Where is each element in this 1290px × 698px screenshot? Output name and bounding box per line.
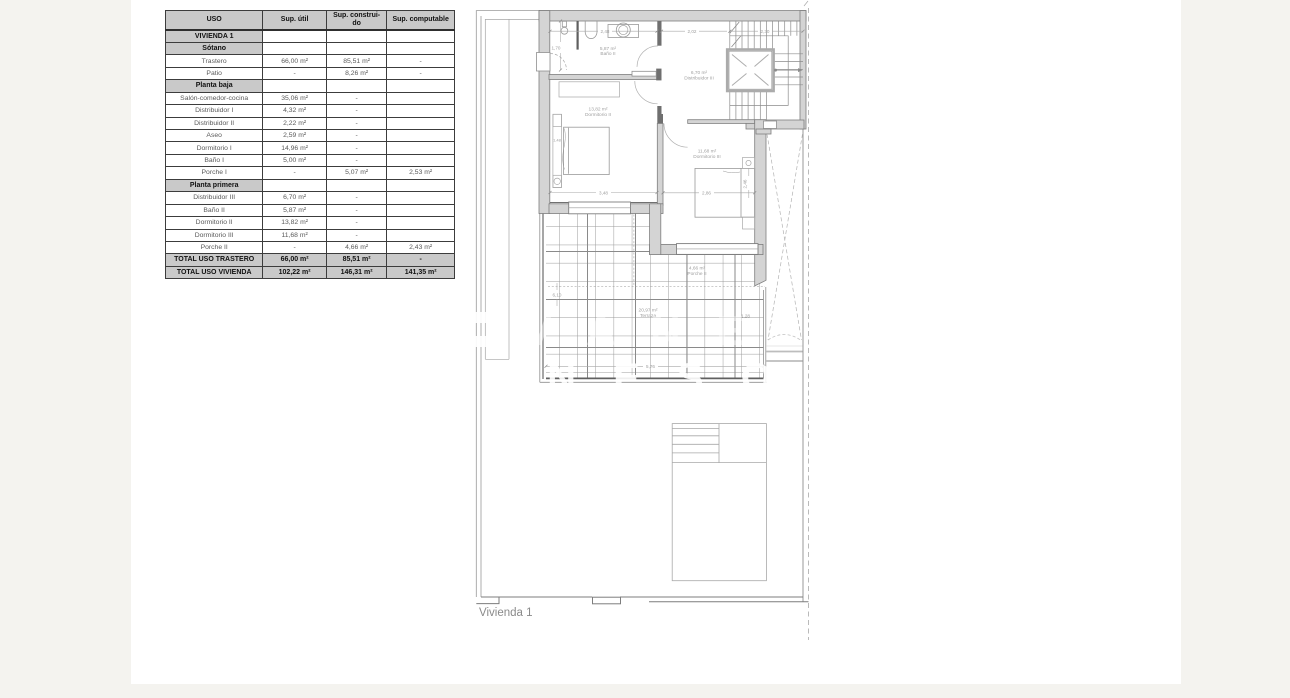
svg-text:Vivienda 1: Vivienda 1 <box>479 607 533 619</box>
svg-text:Baño II: Baño II <box>600 51 615 57</box>
svg-text:4,66 m²: 4,66 m² <box>689 266 706 272</box>
svg-text:5,87 m²: 5,87 m² <box>600 46 617 52</box>
svg-text:2,02: 2,02 <box>688 29 697 34</box>
svg-text:2,48: 2,48 <box>601 29 610 34</box>
svg-text:V A N E: V A N E <box>524 307 757 354</box>
svg-text:1,48: 1,48 <box>553 138 562 143</box>
svg-text:Distribuidor III: Distribuidor III <box>684 76 714 82</box>
svg-text:3,48: 3,48 <box>599 190 608 195</box>
svg-text:Dormitorio II: Dormitorio II <box>585 112 611 118</box>
svg-text:6,10: 6,10 <box>553 293 562 298</box>
svg-text:2,46: 2,46 <box>742 179 747 188</box>
svg-text:13,82 m²: 13,82 m² <box>589 107 608 113</box>
svg-text:2,30: 2,30 <box>761 29 770 34</box>
svg-text:Dormitorio III: Dormitorio III <box>693 154 720 160</box>
svg-text:11,68 m²: 11,68 m² <box>698 149 717 155</box>
svg-text:Porche II: Porche II <box>687 271 706 277</box>
svg-text:2,86: 2,86 <box>702 191 711 196</box>
svg-text:6,70 m²: 6,70 m² <box>691 70 708 76</box>
svg-text:1,70: 1,70 <box>552 46 561 51</box>
svg-text:N E S O: N E S O <box>547 356 785 400</box>
